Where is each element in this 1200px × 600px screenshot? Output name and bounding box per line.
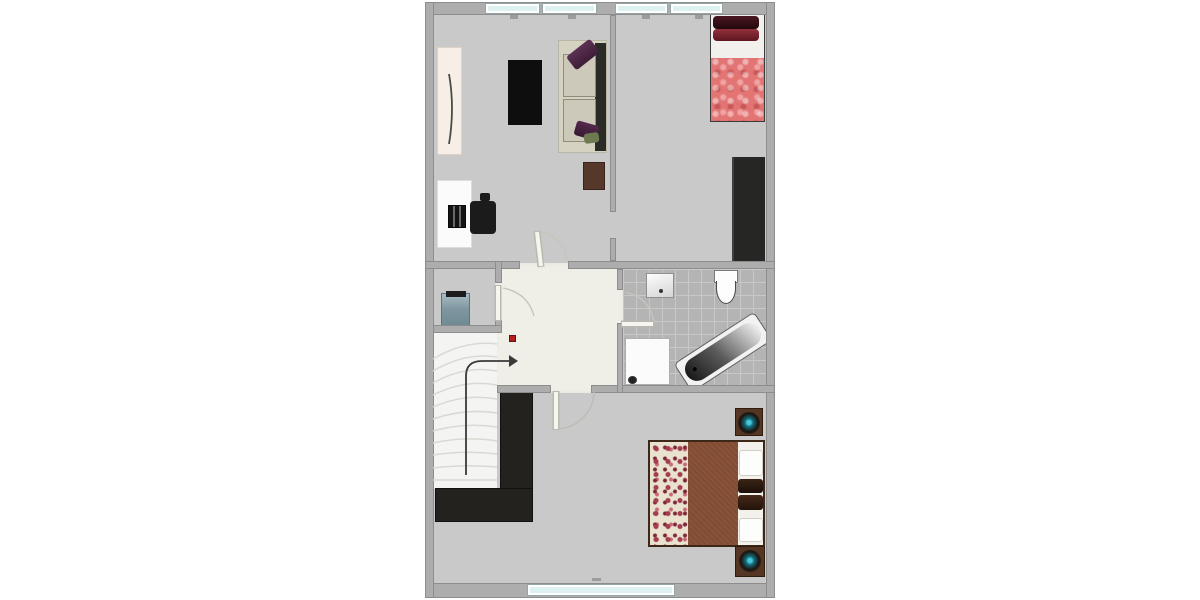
- hallway-floor: [495, 263, 623, 393]
- desk-monitor: [448, 205, 466, 228]
- washer-knob-icon: [628, 376, 637, 384]
- double-bed: [648, 440, 765, 547]
- wall-mid-upper-right: [568, 261, 775, 269]
- nightstand-top: [735, 408, 763, 436]
- window-sill-tick: [568, 15, 576, 19]
- teal-cabinet-top: [446, 291, 466, 297]
- wall-bedroom-divider: [610, 15, 616, 212]
- nightstand-bottom: [735, 546, 765, 577]
- wall-bedroom-divider-stub: [610, 238, 616, 261]
- wall-storage-hall-stub-top: [495, 261, 502, 283]
- wall-bath-hall-stub-bottom: [617, 323, 623, 393]
- window-top-2: [542, 3, 597, 14]
- window-sill-tick: [592, 578, 601, 581]
- office-chair: [470, 201, 496, 234]
- tall-dark-wardrobe: [732, 157, 765, 263]
- wall-mid-upper-left: [425, 261, 520, 269]
- wall-left: [425, 2, 434, 598]
- window-sill-tick: [642, 15, 650, 19]
- bolster-pillow-icon: [738, 479, 763, 493]
- wall-bath-hall-stub-top: [617, 269, 623, 290]
- wall-hall-bedroom-left: [497, 385, 551, 393]
- pink-blanket: [711, 58, 764, 121]
- sofa: [558, 40, 607, 153]
- pillow-white-icon: [739, 518, 763, 542]
- floral-bedspread: [650, 442, 688, 545]
- single-bed: [710, 13, 765, 122]
- window-sill-tick: [510, 15, 518, 19]
- faucet-icon: [659, 289, 663, 293]
- window-top-4: [670, 3, 723, 14]
- cream-wardrobe: [437, 47, 462, 155]
- bed-pillow-dark-icon: [713, 16, 759, 29]
- wall-stairs-top: [433, 325, 502, 333]
- drain-icon: [692, 366, 698, 372]
- brown-blanket: [688, 442, 738, 545]
- teal-cabinet: [441, 293, 470, 328]
- washing-machine: [625, 338, 670, 385]
- window-sill-tick: [695, 15, 703, 19]
- pillow-white-icon: [739, 450, 763, 476]
- floorplan: [425, 2, 775, 598]
- l-shaped-wardrobe-horizontal: [435, 488, 533, 522]
- window-top-3: [615, 3, 668, 14]
- window-glass: [618, 6, 665, 11]
- black-rug: [508, 60, 542, 125]
- wall-right: [766, 2, 775, 598]
- window-glass: [673, 6, 720, 11]
- bed-pillow-red-icon: [713, 29, 759, 41]
- bolster-pillow-icon: [738, 495, 763, 510]
- red-marker: [509, 335, 516, 342]
- sink: [646, 273, 674, 298]
- pillow-green-icon: [583, 132, 599, 144]
- decorative-bowl-icon: [739, 550, 761, 572]
- window-bottom: [527, 584, 675, 596]
- page: { "document": { "kind": "floor-plan-rend…: [0, 0, 1200, 600]
- window-glass: [488, 6, 537, 11]
- stairwell-floor: [433, 333, 497, 489]
- window-top-1: [485, 3, 540, 14]
- window-glass: [545, 6, 594, 11]
- brown-side-table: [583, 162, 605, 190]
- office-chair-headrest: [480, 193, 490, 201]
- window-glass: [530, 587, 672, 593]
- decorative-bowl-icon: [738, 412, 760, 434]
